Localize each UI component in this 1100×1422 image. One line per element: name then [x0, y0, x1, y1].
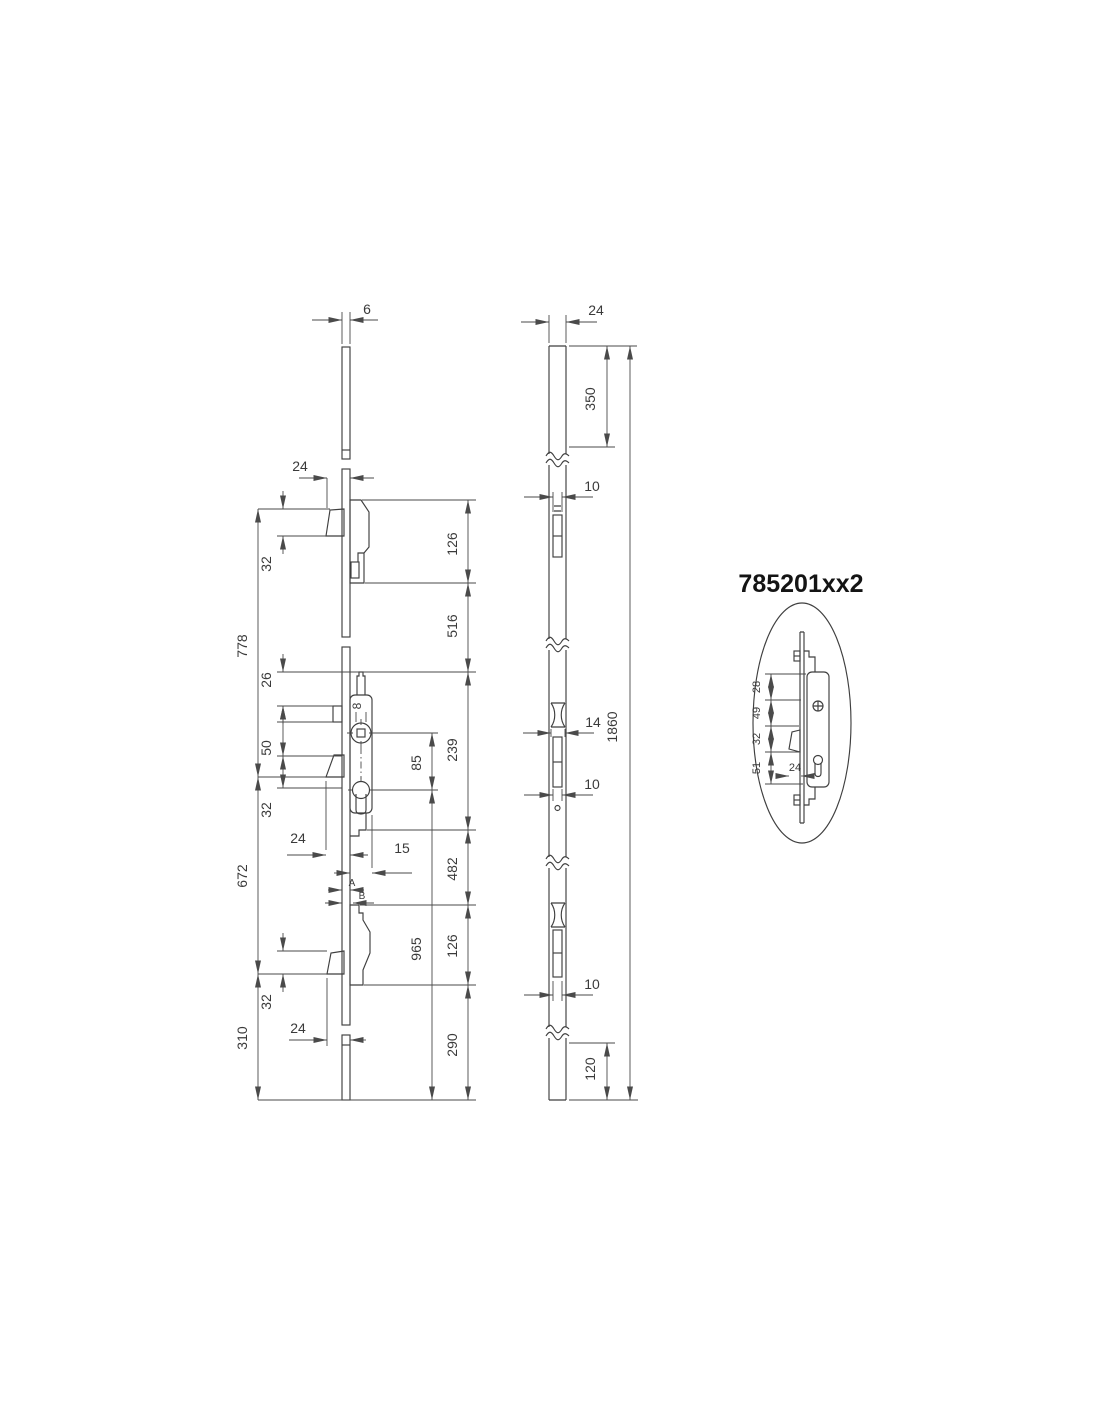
dim-label-A: A — [349, 878, 356, 889]
follower-circle — [351, 723, 371, 743]
dim-label-350: 350 — [582, 387, 598, 411]
ext-line — [549, 315, 566, 343]
dim-label-24-bottom: 24 — [290, 1020, 306, 1036]
dim-label-6: 6 — [363, 301, 371, 317]
dim-front-350: 350 — [569, 346, 637, 447]
faceplate-segment — [342, 647, 350, 1025]
front-view: 24 350 10 14 10 — [521, 302, 638, 1100]
dim-centres-85-965: 85 965 — [372, 733, 438, 1100]
ext-line — [553, 492, 562, 512]
top-hook-case-step — [358, 553, 364, 562]
dim-label-49: 49 — [751, 707, 763, 719]
detail-bottom-bracket — [804, 787, 815, 805]
follower-crosshair — [347, 719, 375, 747]
dim-label-32: 32 — [258, 556, 274, 572]
faceplate-openings — [551, 506, 565, 977]
dim-label-24-detail: 24 — [789, 762, 801, 774]
dim-label-14: 14 — [585, 714, 601, 730]
part-number-label: 785201xx2 — [738, 570, 863, 598]
dim-front-cam-14: 14 — [523, 714, 601, 737]
detail-hook-tip — [789, 730, 800, 752]
detail-dimensions: 28 49 32 51 24 — [751, 674, 812, 784]
dim-label-15: 15 — [394, 840, 410, 856]
dim-thickness-6: 6 — [312, 301, 378, 344]
bottom-hook-case — [350, 905, 370, 985]
ext-line — [553, 789, 562, 801]
dim-label-24-mid: 24 — [290, 830, 306, 846]
dim-follower-square-8: 8 — [350, 702, 366, 722]
dim-label-32-detail: 32 — [751, 733, 763, 745]
dim-label-85: 85 — [408, 755, 424, 771]
dim-front-slot-bottom-10: 10 — [524, 976, 600, 1001]
dim-label-672: 672 — [234, 864, 250, 888]
cylinder-tail — [356, 794, 366, 814]
dim-front-width-24: 24 — [521, 302, 604, 343]
side-view: 6 24 32 778 672 310 — [234, 301, 476, 1100]
dim-label-120: 120 — [582, 1057, 598, 1081]
dim-label-516: 516 — [444, 614, 460, 638]
dim-label-1860: 1860 — [604, 711, 620, 742]
ext-line — [551, 729, 565, 737]
detail-bubble-ellipse — [753, 603, 851, 843]
detail-case — [807, 672, 829, 787]
dim-label-B: B — [359, 891, 366, 902]
dim-label-26: 26 — [258, 672, 274, 688]
dim-label-28: 28 — [751, 681, 763, 693]
dim-label-51: 51 — [751, 762, 763, 774]
dim-label-10c: 10 — [584, 976, 600, 992]
top-hook-case-notch — [351, 562, 359, 578]
faceplate-segment — [342, 347, 350, 459]
cylinder-crosshair — [348, 777, 374, 790]
euro-cylinder-hole — [348, 777, 374, 814]
ext-line — [553, 981, 562, 1001]
faceplate-front — [546, 346, 569, 1100]
dim-label-126a: 126 — [444, 532, 460, 556]
detail-view: 785201xx2 28 — [738, 570, 863, 843]
dim-front-1860: 1860 — [569, 346, 638, 1100]
technical-drawing-canvas: 6 24 32 778 672 310 — [0, 0, 1100, 1422]
dim-label-10b: 10 — [584, 776, 600, 792]
dim-label-239: 239 — [444, 738, 460, 762]
dim-front-slot-top-10: 10 — [524, 478, 600, 512]
dim-label-32-bottom: 32 — [258, 994, 274, 1010]
cam-opening-mid — [551, 703, 565, 727]
cam-opening-bottom — [551, 903, 565, 927]
top-hook-bolt — [326, 509, 344, 536]
detail-top-bracket — [804, 651, 815, 672]
faceplate-edge — [342, 347, 350, 1100]
dim-label-front-24: 24 — [588, 302, 604, 318]
dim-front-120: 120 — [569, 1043, 615, 1100]
spindle-hub-block — [333, 706, 342, 722]
latch-bolt — [326, 755, 344, 777]
dim-label-10a: 10 — [584, 478, 600, 494]
dim-label-32-mid: 32 — [258, 802, 274, 818]
screw-hole — [555, 806, 560, 811]
dim-label-8: 8 — [350, 702, 364, 709]
dim-label-778: 778 — [234, 634, 250, 658]
dim-label-50: 50 — [258, 740, 274, 756]
bottom-hook-lock — [327, 905, 370, 985]
detail-faceplate — [800, 632, 804, 823]
dim-label-290: 290 — [444, 1033, 460, 1057]
dim-label-482: 482 — [444, 857, 460, 881]
gearbox-bottom-tab — [350, 813, 366, 836]
ext-line — [342, 312, 350, 344]
lock-drawing-svg: 6 24 32 778 672 310 — [0, 0, 1100, 1422]
dim-gearbox-left: 26 50 32 — [258, 654, 476, 818]
top-hook-lock — [326, 500, 369, 583]
dim-label-126b: 126 — [444, 934, 460, 958]
dim-chain-right: 126 516 239 482 126 290 — [360, 500, 476, 1100]
cylinder-circle — [353, 782, 370, 799]
dim-label-310: 310 — [234, 1026, 250, 1050]
dim-label-24: 24 — [292, 458, 308, 474]
follower-square-hole — [357, 729, 365, 737]
dim-top-hook-height-32: 32 — [258, 491, 330, 572]
faceplate-segment — [342, 469, 350, 637]
dim-label-965: 965 — [408, 937, 424, 961]
screw-marks — [554, 506, 561, 511]
handle-follower — [347, 719, 375, 747]
detail-lock-geometry — [789, 632, 829, 823]
gearbox-top-tab — [357, 672, 365, 695]
